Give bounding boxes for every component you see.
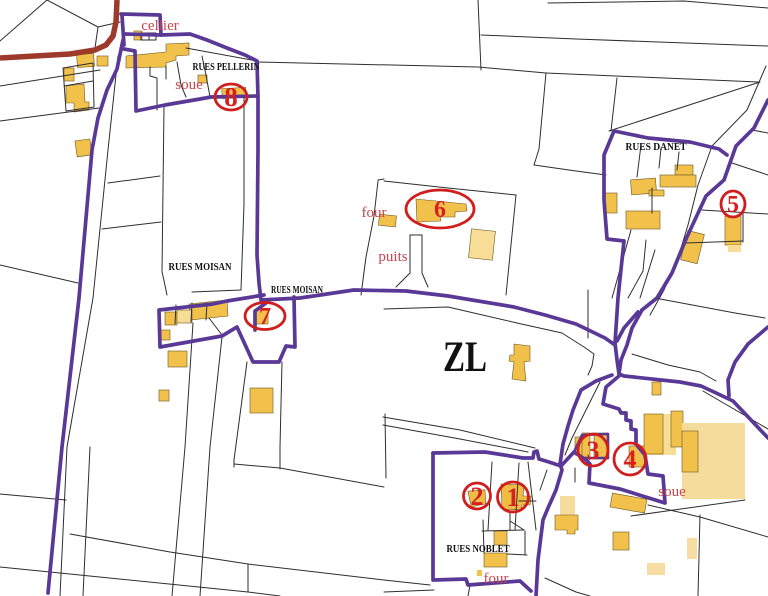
svg-text:6: 6 [434, 197, 446, 223]
svg-text:8: 8 [224, 82, 238, 112]
svg-text:RUES NOBLET: RUES NOBLET [447, 544, 510, 555]
svg-text:4: 4 [624, 445, 637, 474]
svg-text:RUES DANET: RUES DANET [626, 142, 687, 153]
svg-text:RUES PELLERIN: RUES PELLERIN [193, 62, 261, 73]
svg-text:four: four [484, 571, 509, 587]
svg-text:soue: soue [658, 484, 686, 500]
svg-text:7: 7 [259, 304, 271, 330]
svg-text:four: four [362, 205, 387, 221]
svg-text:ZL: ZL [443, 334, 487, 381]
svg-text:puits: puits [378, 249, 407, 265]
svg-text:soue: soue [175, 77, 203, 93]
svg-text:cellier: cellier [141, 18, 178, 34]
svg-text:5: 5 [727, 192, 739, 218]
svg-text:RUES MOISAN: RUES MOISAN [169, 262, 233, 273]
svg-text:3: 3 [587, 436, 600, 465]
svg-text:1: 1 [507, 483, 520, 512]
svg-text:RUES MOISAN: RUES MOISAN [271, 285, 324, 296]
svg-text:2: 2 [471, 482, 484, 511]
